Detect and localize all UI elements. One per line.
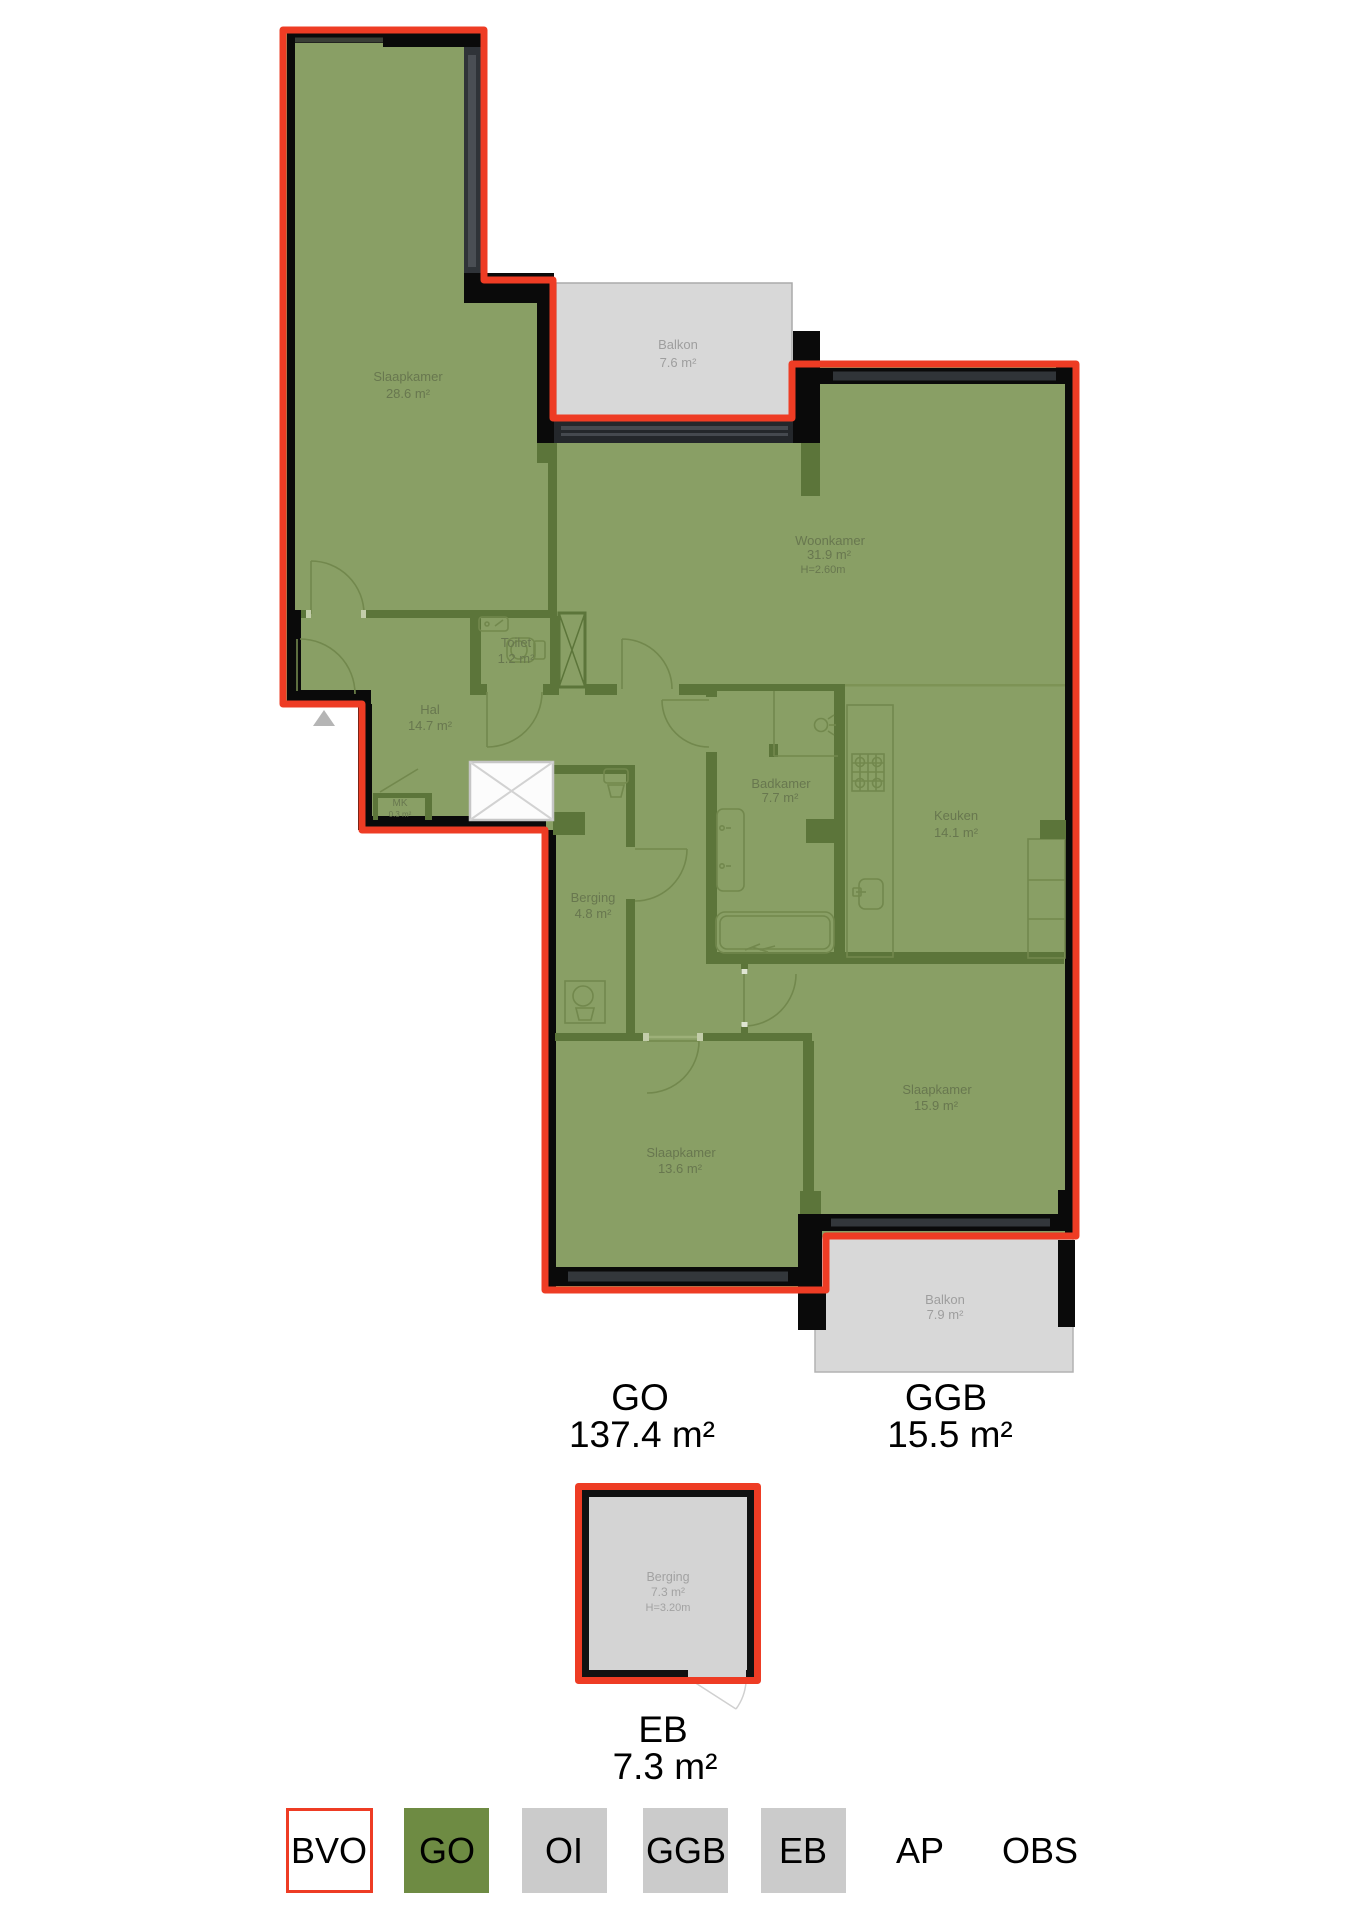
svg-text:GO: GO — [419, 1830, 475, 1871]
svg-text:Balkon: Balkon — [925, 1292, 965, 1307]
svg-text:7.3 m²: 7.3 m² — [613, 1746, 718, 1787]
svg-text:Slaapkamer: Slaapkamer — [646, 1145, 716, 1160]
svg-text:13.6 m²: 13.6 m² — [658, 1161, 703, 1176]
svg-text:Balkon: Balkon — [658, 337, 698, 352]
svg-text:GGB: GGB — [646, 1830, 726, 1871]
svg-text:Woonkamer: Woonkamer — [795, 533, 866, 548]
svg-text:Badkamer: Badkamer — [751, 776, 811, 791]
svg-text:Berging: Berging — [646, 1570, 689, 1584]
svg-text:BVO: BVO — [291, 1830, 367, 1871]
svg-text:Slaapkamer: Slaapkamer — [902, 1082, 972, 1097]
svg-text:Keuken: Keuken — [934, 808, 978, 823]
svg-text:GGB: GGB — [905, 1377, 987, 1418]
svg-text:14.1 m²: 14.1 m² — [934, 825, 979, 840]
svg-text:H=3.20m: H=3.20m — [646, 1602, 691, 1614]
svg-text:Slaapkamer: Slaapkamer — [373, 369, 443, 384]
svg-text:Hal: Hal — [420, 702, 440, 717]
svg-text:4.8 m²: 4.8 m² — [575, 906, 613, 921]
svg-text:0.3 m²: 0.3 m² — [389, 810, 412, 819]
svg-text:7.6 m²: 7.6 m² — [660, 355, 698, 370]
svg-text:15.5 m²: 15.5 m² — [887, 1414, 1012, 1455]
svg-text:MK: MK — [393, 798, 408, 809]
svg-text:EB: EB — [638, 1709, 687, 1750]
svg-text:Toilet: Toilet — [501, 635, 532, 650]
svg-text:Berging: Berging — [571, 890, 616, 905]
svg-text:OI: OI — [545, 1830, 583, 1871]
svg-text:GO: GO — [611, 1377, 669, 1418]
svg-text:H=2.60m: H=2.60m — [801, 564, 846, 576]
svg-text:AP: AP — [896, 1830, 944, 1871]
svg-text:14.7 m²: 14.7 m² — [408, 718, 453, 733]
svg-text:7.7 m²: 7.7 m² — [762, 790, 800, 805]
svg-text:7.3 m²: 7.3 m² — [651, 1585, 685, 1599]
svg-text:7.9 m²: 7.9 m² — [927, 1307, 965, 1322]
svg-text:1.2 m²: 1.2 m² — [498, 651, 536, 666]
svg-text:31.9 m²: 31.9 m² — [807, 547, 852, 562]
svg-text:OBS: OBS — [1002, 1830, 1078, 1871]
svg-text:137.4 m²: 137.4 m² — [569, 1414, 715, 1455]
svg-text:28.6 m²: 28.6 m² — [386, 386, 431, 401]
svg-text:EB: EB — [779, 1830, 827, 1871]
svg-text:15.9 m²: 15.9 m² — [914, 1098, 959, 1113]
